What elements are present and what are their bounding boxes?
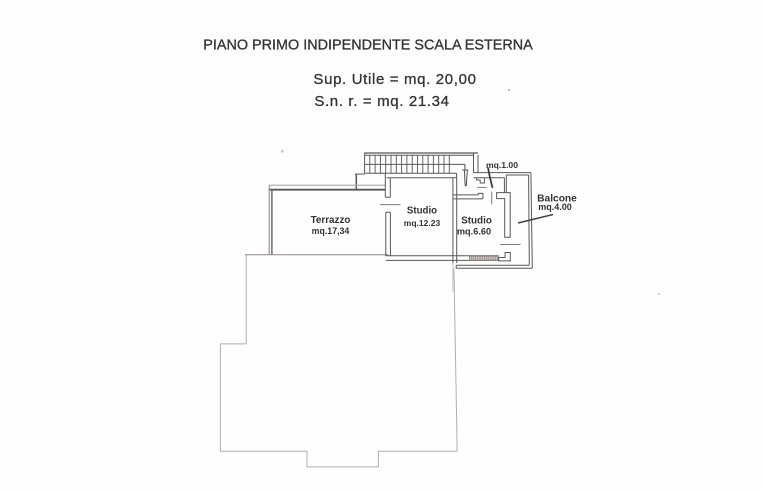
svg-text:PIANO PRIMO INDIPENDENTE SCALA: PIANO PRIMO INDIPENDENTE SCALA ESTERNA (203, 38, 533, 54)
svg-text:Studio: Studio (407, 206, 437, 217)
svg-text:mq.6.60: mq.6.60 (457, 227, 491, 237)
svg-text:Terrazzo: Terrazzo (311, 215, 351, 226)
svg-text:Studio: Studio (461, 215, 492, 226)
svg-text:S.n. r. = mq. 21.34: S.n. r. = mq. 21.34 (314, 93, 449, 110)
svg-text:mq.12.23: mq.12.23 (404, 218, 441, 228)
svg-text:mq.17,34: mq.17,34 (312, 226, 350, 236)
svg-text:Sup. Utile = mq. 20,00: Sup. Utile = mq. 20,00 (313, 71, 476, 88)
svg-text:mq.4.00: mq.4.00 (538, 202, 572, 212)
svg-text:mq.1.00: mq.1.00 (486, 160, 518, 170)
